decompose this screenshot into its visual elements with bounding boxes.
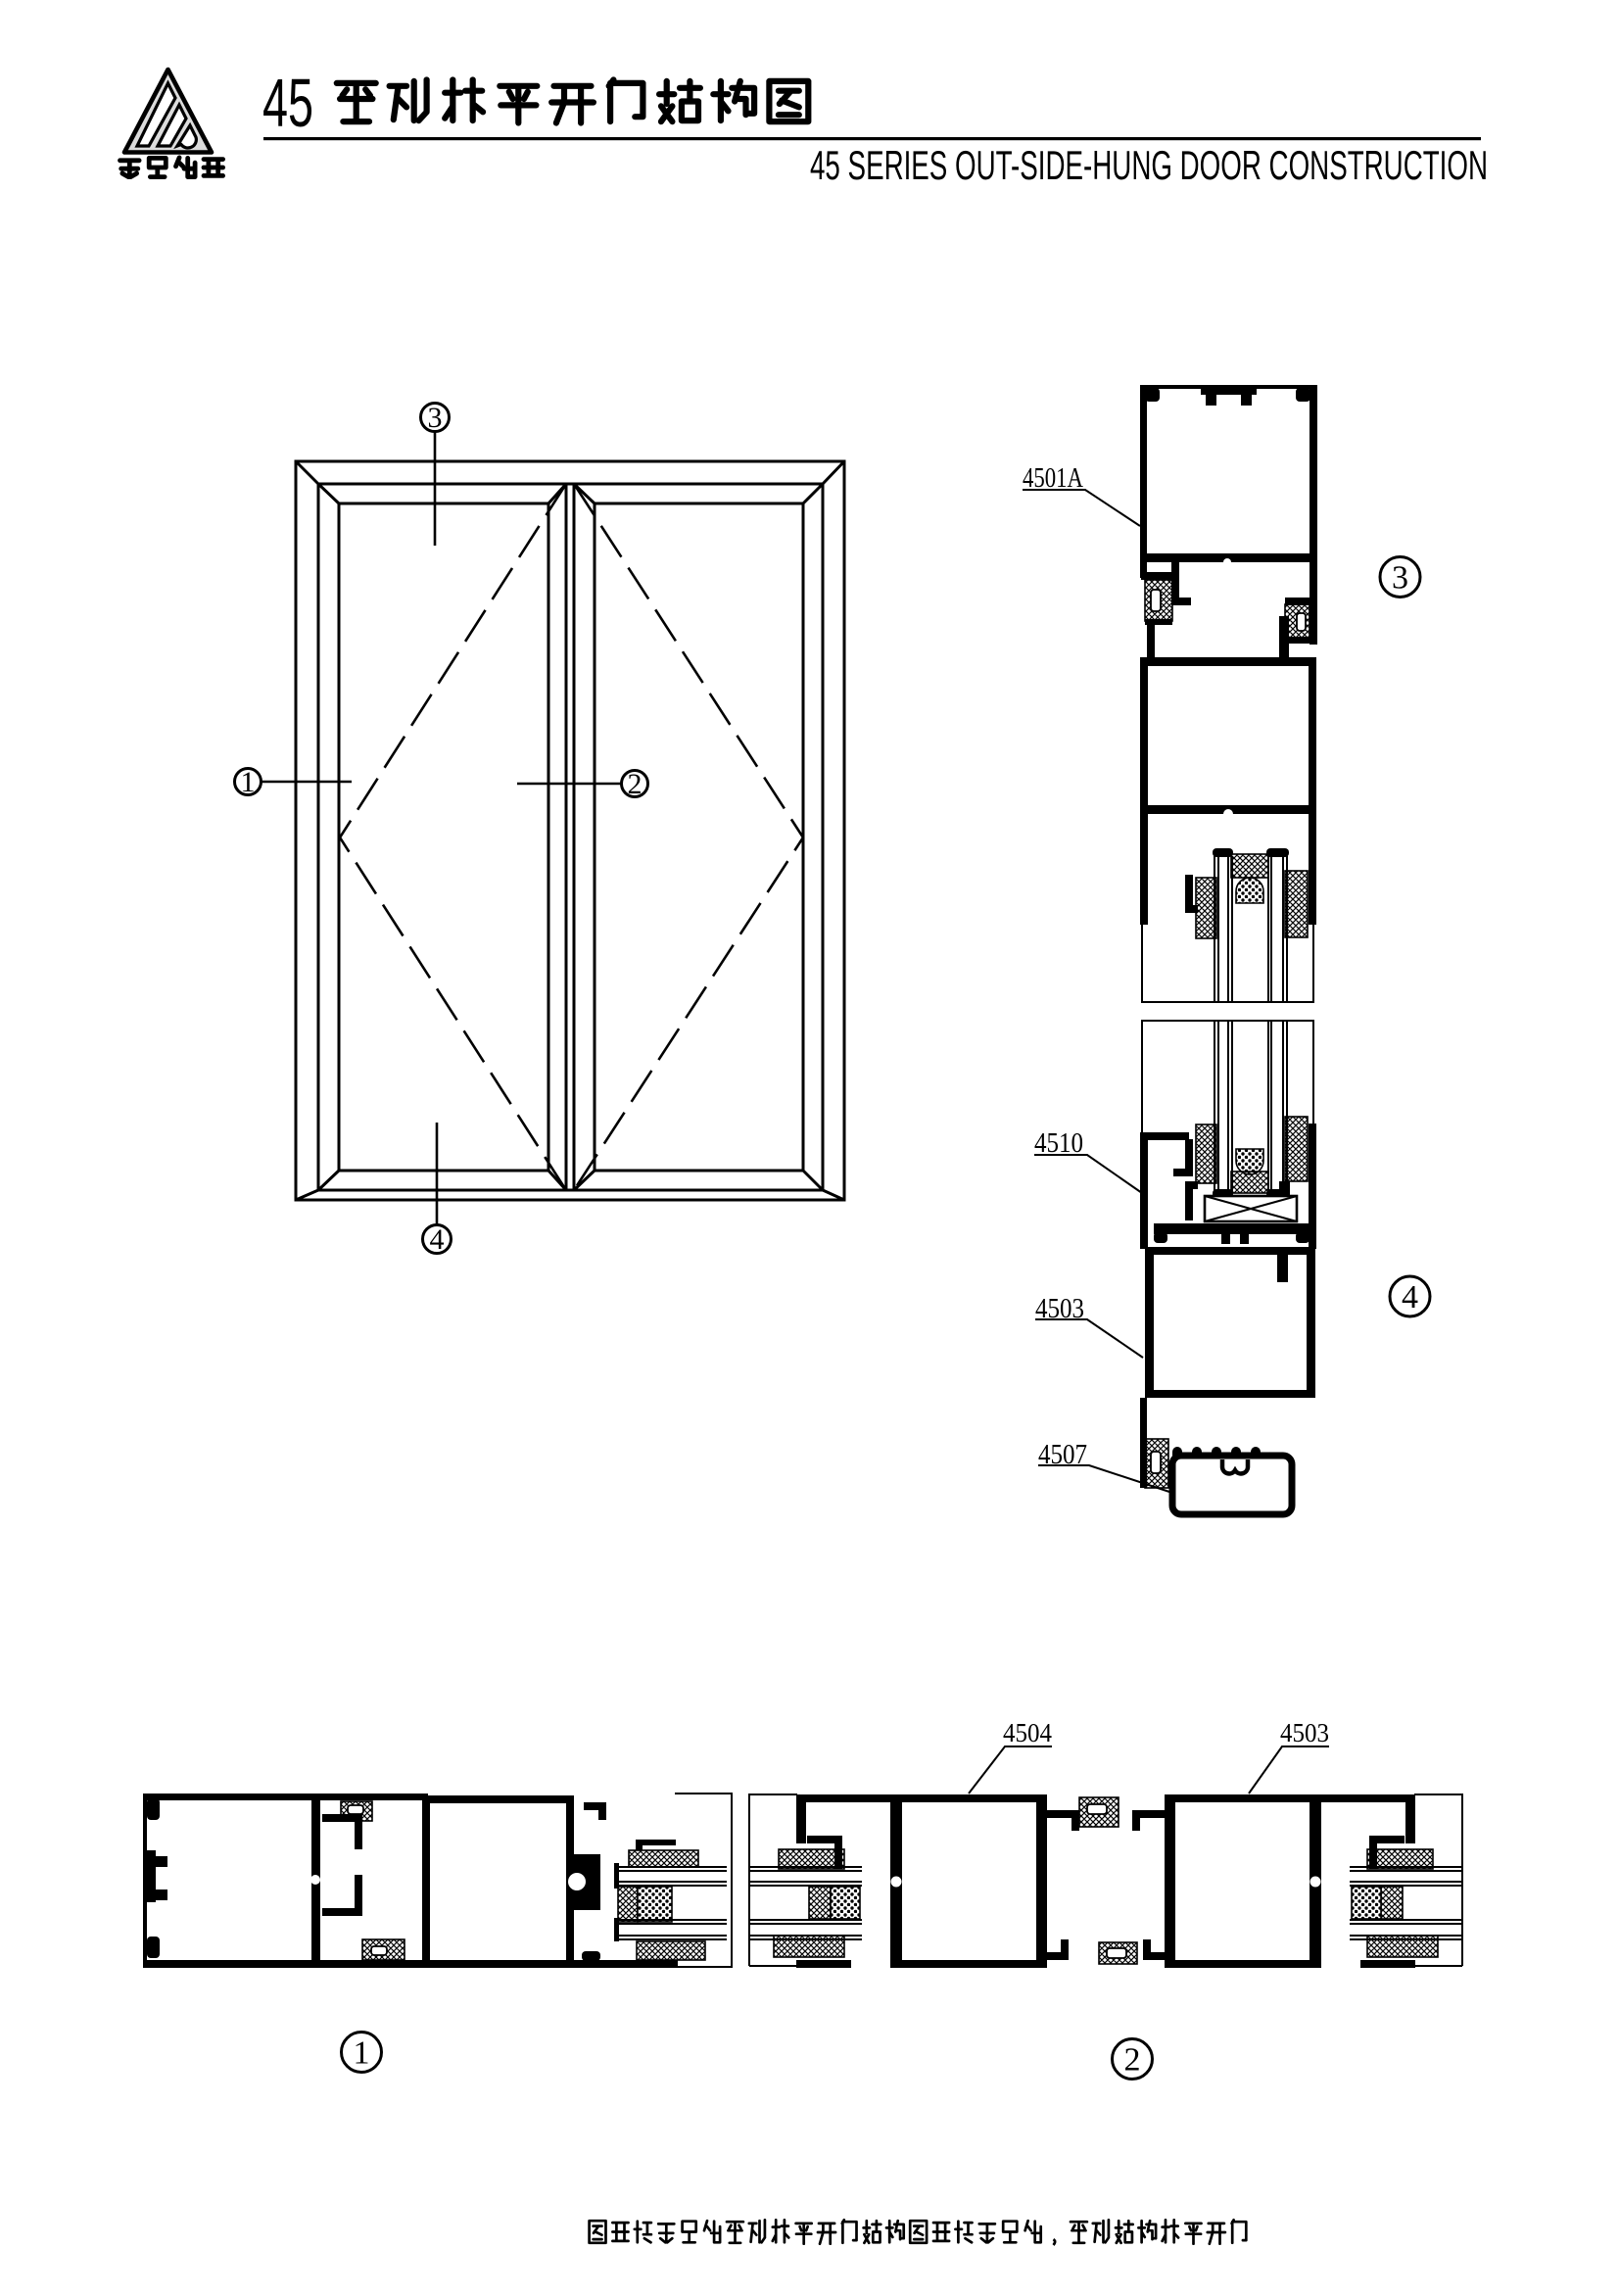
svg-text:45 SERIES OUT-SIDE-HUNG DOOR C: 45 SERIES OUT-SIDE-HUNG DOOR CONSTRUCTIO… bbox=[810, 142, 1488, 188]
svg-text:2: 2 bbox=[628, 768, 643, 800]
svg-text:3: 3 bbox=[428, 402, 443, 434]
svg-text:1: 1 bbox=[241, 766, 256, 798]
svg-text:4: 4 bbox=[430, 1223, 445, 1256]
svg-text:4503: 4503 bbox=[1280, 1718, 1329, 1747]
svg-text:4504: 4504 bbox=[1003, 1718, 1052, 1747]
svg-text:3: 3 bbox=[1392, 560, 1408, 597]
svg-text:2: 2 bbox=[1124, 2042, 1141, 2079]
svg-text:4: 4 bbox=[1402, 1279, 1418, 1315]
svg-text:45: 45 bbox=[262, 65, 313, 141]
svg-text:1: 1 bbox=[354, 2035, 370, 2072]
